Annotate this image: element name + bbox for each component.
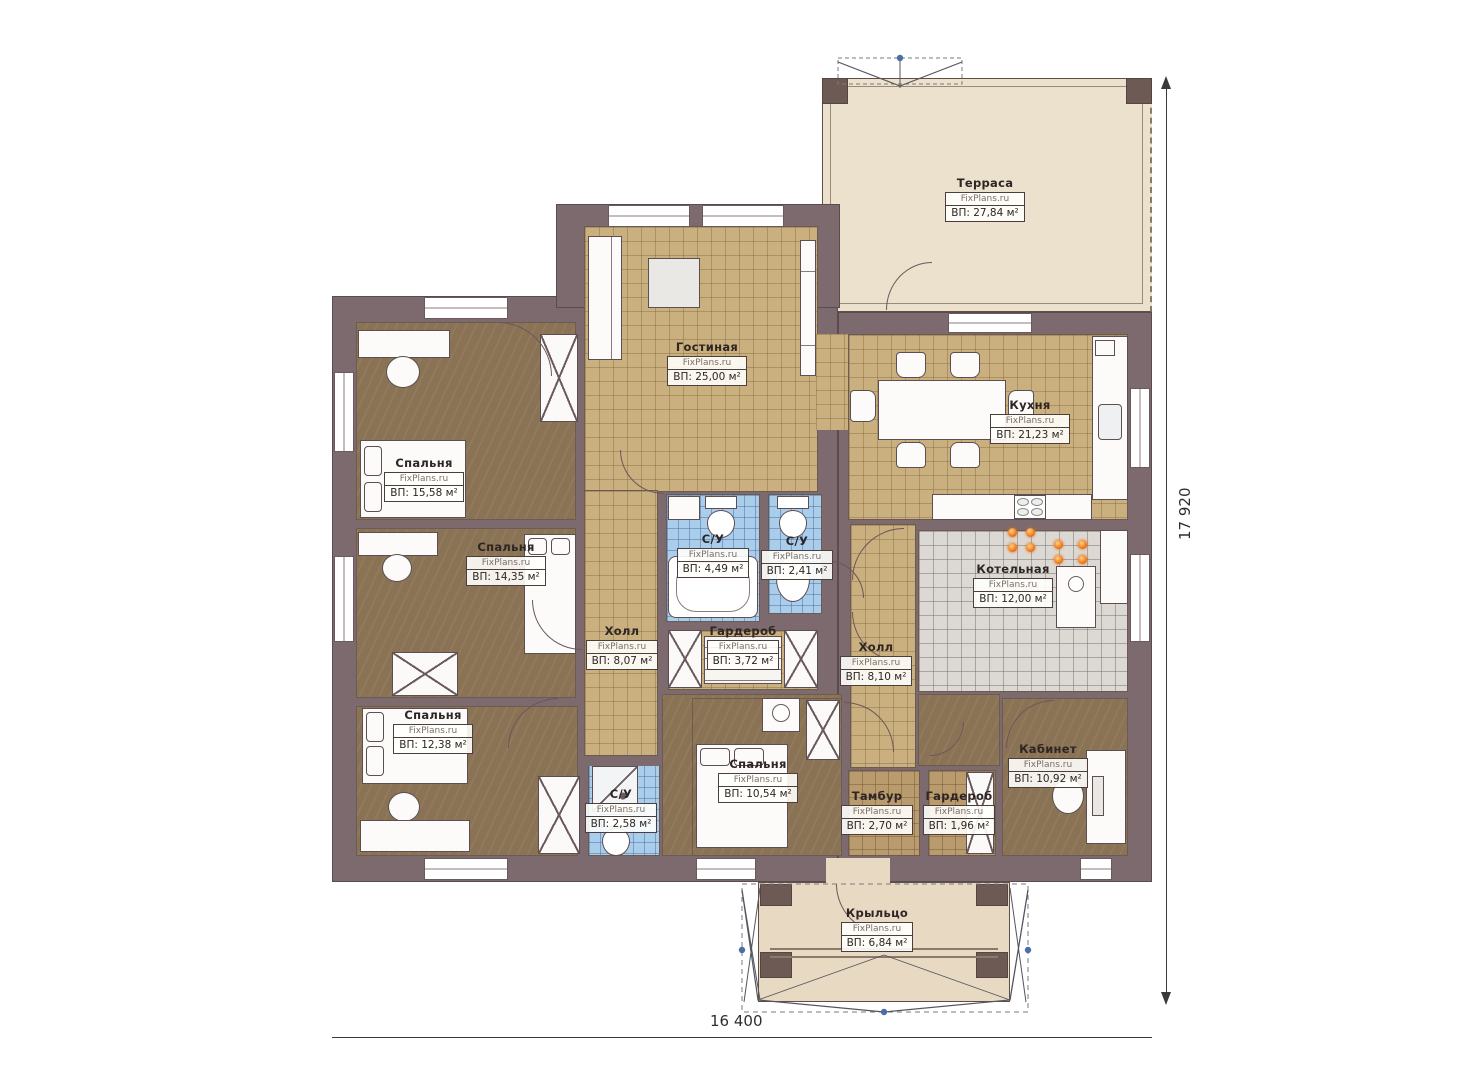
chair (950, 352, 980, 378)
watermark: FixPlans.ru (587, 641, 658, 654)
room-hall-1 (584, 490, 658, 756)
window (424, 297, 508, 319)
burner-dot (1078, 540, 1087, 549)
room-label-kitchen: Кухня FixPlans.ru ВП: 21,23 м² (970, 398, 1090, 444)
coffee-table (648, 258, 700, 308)
chair (386, 356, 420, 388)
wardrobe-cabinet (392, 652, 458, 696)
window (948, 313, 1032, 333)
watermark: FixPlans.ru (385, 473, 463, 486)
sofa (588, 236, 622, 360)
burner-dot (1008, 543, 1017, 552)
kitchen-counter (932, 494, 1092, 520)
watermark: FixPlans.ru (1009, 759, 1087, 772)
room-label-wardrobe-2: Гардероб FixPlans.ru ВП: 1,96 м² (899, 789, 1019, 835)
dimension-height-label: 17 920 (1176, 488, 1194, 541)
watermark: FixPlans.ru (719, 774, 797, 787)
room-label-hall-2: Холл FixPlans.ru ВП: 8,10 м² (816, 640, 936, 686)
boiler-counter (1100, 530, 1128, 604)
burner-dot (1078, 555, 1087, 564)
wall-hall-su (584, 756, 662, 766)
chair (896, 442, 926, 468)
window (424, 858, 508, 880)
dimension-arrow-up (1161, 76, 1171, 89)
room-label-bedroom-bl: Спальня FixPlans.ru ВП: 12,38 м² (373, 708, 493, 754)
toilet (774, 496, 812, 538)
burner-dot (1026, 528, 1035, 537)
window (1130, 554, 1150, 642)
burner-dot (1026, 543, 1035, 552)
room-label-terrace: Терраса FixPlans.ru ВП: 27,84 м² (925, 176, 1045, 222)
room-label-bathroom-3: С/У FixPlans.ru ВП: 2,58 м² (561, 787, 681, 833)
burner-dot (1008, 528, 1017, 537)
watermark: FixPlans.ru (586, 804, 657, 817)
dimension-width-label: 16 400 (710, 1012, 763, 1030)
kitchen-appliance (1095, 340, 1115, 356)
window (1080, 858, 1112, 880)
dimension-arrow-down (1161, 992, 1171, 1005)
room-label-bedroom-ml: Спальня FixPlans.ru ВП: 14,35 м² (446, 540, 566, 586)
porch-step-line (770, 956, 998, 958)
kitchen-sink (1098, 404, 1122, 440)
window (702, 205, 784, 227)
chair (388, 792, 420, 822)
wardrobe-cabinet (806, 700, 840, 760)
watermark: FixPlans.ru (708, 641, 779, 654)
watermark: FixPlans.ru (842, 923, 913, 936)
window (696, 858, 756, 880)
porch-pillar (760, 884, 792, 906)
chair (950, 442, 980, 468)
watermark: FixPlans.ru (974, 579, 1052, 592)
desk (360, 820, 470, 852)
window (334, 556, 354, 642)
room-label-hall-1: Холл FixPlans.ru ВП: 8,07 м² (562, 624, 682, 670)
room-label-cabinet: Кабинет FixPlans.ru ВП: 10,92 м² (988, 742, 1108, 788)
wardrobe-cabinet (540, 334, 578, 422)
porch-pillar (976, 884, 1008, 906)
room-label-wardrobe-1: Гардероб FixPlans.ru ВП: 3,72 м² (683, 624, 803, 670)
stove-icon (1014, 495, 1046, 519)
watermark: FixPlans.ru (946, 193, 1024, 206)
floor-plan: Терраса FixPlans.ru ВП: 27,84 м² Гостина… (0, 0, 1474, 1080)
room-label-living: Гостиная FixPlans.ru ВП: 25,00 м² (647, 340, 767, 386)
terrace-pillar (822, 78, 848, 104)
watermark: FixPlans.ru (841, 657, 912, 670)
window (1130, 388, 1150, 468)
burner-dot (1054, 540, 1063, 549)
chair (896, 352, 926, 378)
watermark: FixPlans.ru (762, 551, 833, 564)
chair (850, 390, 876, 422)
chair (382, 554, 412, 582)
entry-opening (826, 858, 890, 884)
watermark: FixPlans.ru (924, 806, 995, 819)
kitchen-living-opening (816, 334, 850, 430)
tv-stand (800, 240, 816, 376)
watermark: FixPlans.ru (467, 557, 545, 570)
room-label-porch: Крыльцо FixPlans.ru ВП: 6,84 м² (817, 906, 937, 952)
dimension-line-right (1166, 82, 1167, 1000)
watermark: FixPlans.ru (668, 357, 746, 370)
window (608, 205, 690, 227)
dimension-line-bottom (332, 1037, 1152, 1038)
desk (358, 330, 450, 358)
desk (358, 532, 438, 556)
window (334, 372, 354, 452)
room-label-bedroom-bc: Спальня FixPlans.ru ВП: 10,54 м² (698, 757, 818, 803)
watermark: FixPlans.ru (991, 415, 1069, 428)
room-label-bedroom-tl: Спальня FixPlans.ru ВП: 15,58 м² (364, 456, 484, 502)
room-label-boiler: Котельная FixPlans.ru ВП: 12,00 м² (953, 562, 1073, 608)
bathroom-sink (668, 496, 700, 520)
room-boiler (918, 530, 1128, 692)
watermark: FixPlans.ru (394, 725, 472, 738)
washing-machine-door (772, 704, 790, 722)
terrace-pillar (1126, 78, 1152, 104)
room-label-bathroom-2: С/У FixPlans.ru ВП: 2,41 м² (737, 534, 857, 580)
